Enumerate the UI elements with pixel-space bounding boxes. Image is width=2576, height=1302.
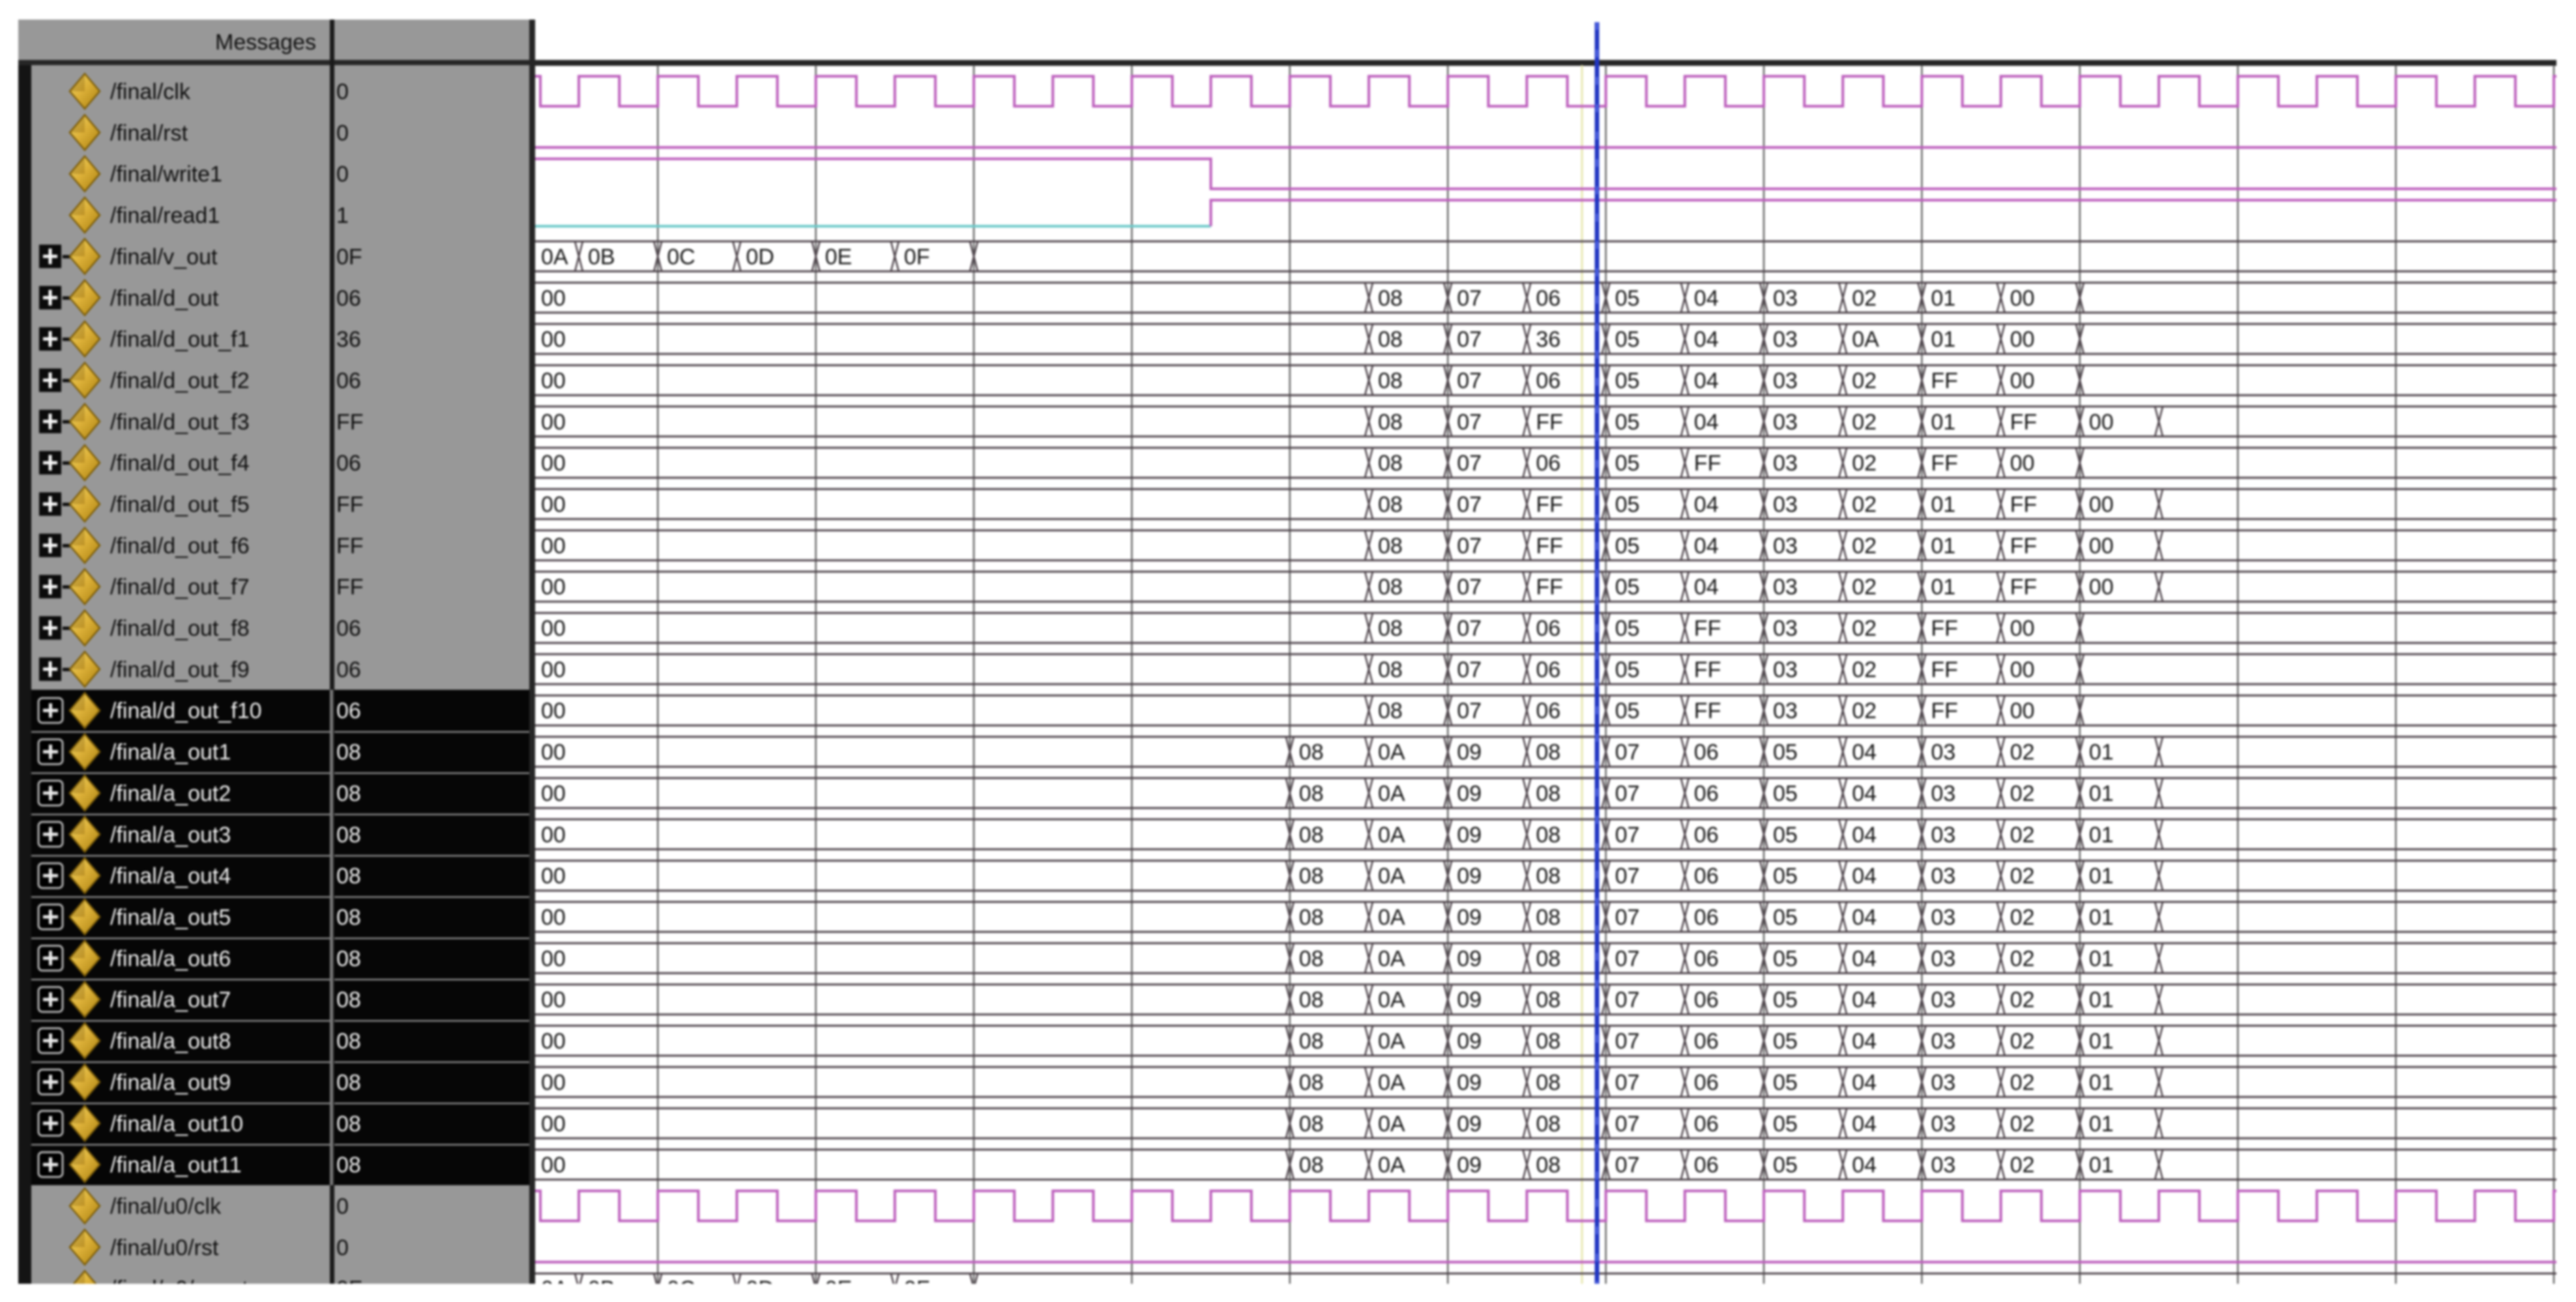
svg-text:09: 09 <box>1457 864 1482 889</box>
svg-text:08: 08 <box>1299 1153 1324 1178</box>
svg-text:03: 03 <box>1773 369 1798 394</box>
svg-text:08: 08 <box>336 946 361 971</box>
svg-text:01: 01 <box>1931 327 1955 352</box>
svg-text:07: 07 <box>1457 616 1482 641</box>
svg-text:04: 04 <box>1852 1029 1877 1054</box>
svg-text:02: 02 <box>2010 781 2035 806</box>
svg-text:06: 06 <box>1694 1029 1719 1054</box>
svg-text:08: 08 <box>1299 1070 1324 1095</box>
svg-text:04: 04 <box>1694 493 1719 517</box>
svg-text:05: 05 <box>1773 1153 1798 1178</box>
svg-text:02: 02 <box>1852 699 1877 723</box>
svg-text:03: 03 <box>1773 286 1798 311</box>
svg-text:07: 07 <box>1457 658 1482 682</box>
svg-text:09: 09 <box>1457 1029 1482 1054</box>
svg-text:02: 02 <box>2010 864 2035 889</box>
svg-text:01: 01 <box>2089 1153 2114 1178</box>
svg-text:02: 02 <box>2010 905 2035 930</box>
svg-text:08: 08 <box>1299 781 1324 806</box>
svg-text:0: 0 <box>336 1194 349 1219</box>
svg-text:00: 00 <box>541 988 566 1013</box>
svg-text:0A: 0A <box>1378 988 1405 1013</box>
svg-text:08: 08 <box>1536 988 1560 1013</box>
svg-text:/final/a_out10: /final/a_out10 <box>110 1112 243 1136</box>
svg-text:1: 1 <box>336 203 349 228</box>
svg-text:04: 04 <box>1852 988 1877 1013</box>
svg-text:/final/u0/rst: /final/u0/rst <box>110 1236 219 1260</box>
svg-text:02: 02 <box>1852 451 1877 476</box>
svg-text:04: 04 <box>1694 534 1719 558</box>
svg-text:07: 07 <box>1615 946 1640 971</box>
svg-text:04: 04 <box>1852 1153 1877 1178</box>
svg-text:08: 08 <box>1378 534 1403 558</box>
svg-text:02: 02 <box>2010 946 2035 971</box>
svg-text:06: 06 <box>336 658 361 682</box>
svg-text:0F: 0F <box>904 244 930 269</box>
svg-text:07: 07 <box>1615 822 1640 847</box>
svg-text:04: 04 <box>1852 822 1877 847</box>
svg-text:03: 03 <box>1931 988 1955 1013</box>
svg-text:03: 03 <box>1773 410 1798 435</box>
svg-text:/final/a_out11: /final/a_out11 <box>110 1153 242 1178</box>
svg-text:03: 03 <box>1931 946 1955 971</box>
svg-text:06: 06 <box>1694 864 1719 889</box>
svg-text:0F: 0F <box>336 244 362 269</box>
svg-text:02: 02 <box>2010 1029 2035 1054</box>
svg-text:05: 05 <box>1773 988 1798 1013</box>
svg-text:/final/write1: /final/write1 <box>110 162 222 187</box>
svg-text:05: 05 <box>1615 327 1640 352</box>
svg-text:FF: FF <box>1931 451 1958 476</box>
svg-text:06: 06 <box>1536 616 1560 641</box>
svg-text:36: 36 <box>1536 327 1560 352</box>
svg-text:0: 0 <box>336 80 349 104</box>
svg-text:07: 07 <box>1615 1112 1640 1136</box>
svg-text:00: 00 <box>541 781 566 806</box>
svg-text:06: 06 <box>1536 451 1560 476</box>
svg-text:00: 00 <box>541 699 566 723</box>
svg-text:FF: FF <box>1694 699 1721 723</box>
svg-text:09: 09 <box>1457 781 1482 806</box>
svg-text:02: 02 <box>2010 740 2035 765</box>
svg-text:03: 03 <box>1773 534 1798 558</box>
svg-text:/final/clk: /final/clk <box>110 80 191 104</box>
svg-text:Messages: Messages <box>215 30 316 55</box>
svg-text:01: 01 <box>1931 534 1955 558</box>
svg-text:05: 05 <box>1615 493 1640 517</box>
svg-text:02: 02 <box>2010 1070 2035 1095</box>
svg-text:06: 06 <box>1694 1070 1719 1095</box>
svg-text:01: 01 <box>1931 493 1955 517</box>
svg-text:02: 02 <box>1852 616 1877 641</box>
svg-text:04: 04 <box>1694 410 1719 435</box>
svg-text:06: 06 <box>1694 1112 1719 1136</box>
svg-text:FF: FF <box>1931 616 1958 641</box>
svg-text:/final/d_out_f10: /final/d_out_f10 <box>110 699 262 723</box>
svg-text:08: 08 <box>1536 946 1560 971</box>
svg-text:08: 08 <box>336 864 361 889</box>
svg-text:08: 08 <box>336 1029 361 1054</box>
svg-text:06: 06 <box>336 286 361 311</box>
svg-text:08: 08 <box>1378 369 1403 394</box>
svg-text:/final/d_out_f4: /final/d_out_f4 <box>110 451 250 476</box>
svg-text:FF: FF <box>1536 493 1563 517</box>
svg-text:07: 07 <box>1457 575 1482 600</box>
svg-text:/final/d_out_f5: /final/d_out_f5 <box>110 493 250 517</box>
svg-text:05: 05 <box>1615 369 1640 394</box>
svg-text:09: 09 <box>1457 988 1482 1013</box>
svg-text:/final/rst: /final/rst <box>110 121 188 145</box>
svg-text:FF: FF <box>336 493 364 517</box>
svg-text:FF: FF <box>1536 410 1563 435</box>
svg-text:0A: 0A <box>1378 822 1405 847</box>
svg-text:06: 06 <box>1536 699 1560 723</box>
svg-text:00: 00 <box>541 1029 566 1054</box>
svg-text:01: 01 <box>2089 905 2114 930</box>
svg-text:03: 03 <box>1931 905 1955 930</box>
svg-text:FF: FF <box>1536 575 1563 600</box>
svg-text:FF: FF <box>1694 451 1721 476</box>
svg-text:03: 03 <box>1773 327 1798 352</box>
svg-text:07: 07 <box>1615 1070 1640 1095</box>
svg-text:03: 03 <box>1931 1153 1955 1178</box>
svg-text:00: 00 <box>541 493 566 517</box>
svg-text:05: 05 <box>1615 451 1640 476</box>
svg-text:08: 08 <box>336 1153 361 1178</box>
svg-text:01: 01 <box>1931 410 1955 435</box>
svg-text:09: 09 <box>1457 1153 1482 1178</box>
svg-text:09: 09 <box>1457 740 1482 765</box>
svg-text:02: 02 <box>1852 369 1877 394</box>
svg-text:05: 05 <box>1615 699 1640 723</box>
svg-text:06: 06 <box>1536 286 1560 311</box>
svg-text:06: 06 <box>1536 658 1560 682</box>
svg-text:0B: 0B <box>588 244 615 269</box>
svg-text:01: 01 <box>1931 575 1955 600</box>
svg-text:06: 06 <box>336 451 361 476</box>
svg-text:04: 04 <box>1852 740 1877 765</box>
svg-text:00: 00 <box>2089 534 2114 558</box>
svg-text:01: 01 <box>2089 781 2114 806</box>
svg-text:08: 08 <box>1378 410 1403 435</box>
svg-text:07: 07 <box>1615 781 1640 806</box>
svg-text:/final/d_out_f2: /final/d_out_f2 <box>110 369 250 394</box>
svg-text:02: 02 <box>2010 1153 2035 1178</box>
svg-text:07: 07 <box>1457 534 1482 558</box>
svg-text:08: 08 <box>336 988 361 1013</box>
svg-text:FF: FF <box>2010 534 2038 558</box>
svg-text:00: 00 <box>541 616 566 641</box>
svg-text:01: 01 <box>2089 1112 2114 1136</box>
svg-text:06: 06 <box>336 616 361 641</box>
svg-text:/final/a_out4: /final/a_out4 <box>110 864 231 889</box>
svg-text:08: 08 <box>336 822 361 847</box>
svg-text:08: 08 <box>336 1070 361 1095</box>
svg-text:/final/d_out_f1: /final/d_out_f1 <box>110 327 250 352</box>
svg-text:00: 00 <box>2010 658 2035 682</box>
svg-text:0A: 0A <box>1852 327 1879 352</box>
svg-text:08: 08 <box>336 781 361 806</box>
svg-text:07: 07 <box>1457 451 1482 476</box>
svg-text:02: 02 <box>2010 988 2035 1013</box>
svg-text:02: 02 <box>1852 493 1877 517</box>
svg-text:0: 0 <box>336 162 349 187</box>
svg-text:04: 04 <box>1852 1070 1877 1095</box>
svg-text:08: 08 <box>1299 1112 1324 1136</box>
svg-text:0A: 0A <box>1378 864 1405 889</box>
svg-text:01: 01 <box>1931 286 1955 311</box>
svg-text:0A: 0A <box>1378 1112 1405 1136</box>
svg-text:06: 06 <box>1694 988 1719 1013</box>
svg-text:08: 08 <box>1378 699 1403 723</box>
svg-text:05: 05 <box>1773 1112 1798 1136</box>
svg-text:08: 08 <box>1378 493 1403 517</box>
svg-text:FF: FF <box>2010 410 2038 435</box>
svg-text:05: 05 <box>1773 781 1798 806</box>
svg-text:08: 08 <box>1536 781 1560 806</box>
svg-text:0A: 0A <box>1378 781 1405 806</box>
svg-text:0C: 0C <box>667 244 695 269</box>
svg-text:05: 05 <box>1615 575 1640 600</box>
svg-text:00: 00 <box>541 1153 566 1178</box>
svg-text:02: 02 <box>1852 534 1877 558</box>
svg-text:00: 00 <box>2010 286 2035 311</box>
svg-text:/final/a_out6: /final/a_out6 <box>110 946 231 971</box>
svg-text:05: 05 <box>1773 864 1798 889</box>
svg-text:FF: FF <box>2010 493 2038 517</box>
svg-text:00: 00 <box>2010 699 2035 723</box>
svg-text:00: 00 <box>541 1070 566 1095</box>
svg-text:06: 06 <box>336 699 361 723</box>
svg-text:06: 06 <box>1694 905 1719 930</box>
svg-text:00: 00 <box>541 534 566 558</box>
svg-text:04: 04 <box>1694 327 1719 352</box>
svg-text:07: 07 <box>1615 740 1640 765</box>
svg-text:06: 06 <box>1694 781 1719 806</box>
svg-text:01: 01 <box>2089 1070 2114 1095</box>
svg-text:05: 05 <box>1773 740 1798 765</box>
svg-text:05: 05 <box>1615 616 1640 641</box>
svg-text:00: 00 <box>2089 575 2114 600</box>
svg-text:03: 03 <box>1773 493 1798 517</box>
svg-text:00: 00 <box>2010 327 2035 352</box>
svg-text:00: 00 <box>541 740 566 765</box>
svg-text:08: 08 <box>1378 658 1403 682</box>
svg-text:08: 08 <box>1378 451 1403 476</box>
svg-text:08: 08 <box>1536 1029 1560 1054</box>
svg-text:01: 01 <box>2089 740 2114 765</box>
svg-text:00: 00 <box>541 327 566 352</box>
svg-text:08: 08 <box>1299 822 1324 847</box>
svg-text:00: 00 <box>541 410 566 435</box>
svg-text:04: 04 <box>1852 905 1877 930</box>
svg-text:03: 03 <box>1931 822 1955 847</box>
svg-text:02: 02 <box>1852 575 1877 600</box>
svg-text:08: 08 <box>1378 616 1403 641</box>
svg-text:FF: FF <box>1931 658 1958 682</box>
svg-text:05: 05 <box>1615 286 1640 311</box>
svg-text:0A: 0A <box>1378 905 1405 930</box>
svg-text:06: 06 <box>336 369 361 394</box>
svg-text:08: 08 <box>1378 575 1403 600</box>
svg-text:07: 07 <box>1615 864 1640 889</box>
svg-text:08: 08 <box>1536 1153 1560 1178</box>
svg-text:36: 36 <box>336 327 361 352</box>
svg-text:05: 05 <box>1773 822 1798 847</box>
svg-text:08: 08 <box>1299 864 1324 889</box>
svg-text:/final/v_out: /final/v_out <box>110 244 218 269</box>
svg-text:03: 03 <box>1773 699 1798 723</box>
svg-text:03: 03 <box>1773 658 1798 682</box>
svg-text:05: 05 <box>1773 1029 1798 1054</box>
svg-text:05: 05 <box>1615 410 1640 435</box>
svg-text:01: 01 <box>2089 988 2114 1013</box>
svg-text:/final/d_out_f6: /final/d_out_f6 <box>110 534 250 558</box>
svg-text:0A: 0A <box>1378 740 1405 765</box>
svg-text:03: 03 <box>1931 864 1955 889</box>
svg-text:08: 08 <box>1299 988 1324 1013</box>
svg-text:05: 05 <box>1615 534 1640 558</box>
svg-text:0A: 0A <box>541 244 568 269</box>
svg-text:08: 08 <box>1378 327 1403 352</box>
svg-text:04: 04 <box>1694 369 1719 394</box>
svg-text:04: 04 <box>1852 781 1877 806</box>
svg-text:/final/a_out1: /final/a_out1 <box>110 740 231 765</box>
svg-text:07: 07 <box>1615 988 1640 1013</box>
svg-text:09: 09 <box>1457 946 1482 971</box>
svg-text:03: 03 <box>1931 781 1955 806</box>
svg-text:/final/u0/clk: /final/u0/clk <box>110 1194 222 1219</box>
svg-text:01: 01 <box>2089 946 2114 971</box>
svg-text:/final/d_out_f9: /final/d_out_f9 <box>110 658 250 682</box>
svg-text:0E: 0E <box>825 244 853 269</box>
svg-text:02: 02 <box>2010 822 2035 847</box>
svg-text:FF: FF <box>336 534 364 558</box>
svg-text:08: 08 <box>336 905 361 930</box>
svg-text:00: 00 <box>541 286 566 311</box>
svg-text:06: 06 <box>1536 369 1560 394</box>
svg-text:08: 08 <box>1299 740 1324 765</box>
svg-text:03: 03 <box>1931 740 1955 765</box>
svg-text:FF: FF <box>1931 369 1958 394</box>
svg-text:00: 00 <box>2010 369 2035 394</box>
svg-text:FF: FF <box>1536 534 1563 558</box>
svg-text:07: 07 <box>1615 1153 1640 1178</box>
svg-text:/final/a_out8: /final/a_out8 <box>110 1029 231 1054</box>
svg-text:08: 08 <box>1536 1112 1560 1136</box>
svg-text:07: 07 <box>1457 369 1482 394</box>
svg-text:FF: FF <box>2010 575 2038 600</box>
svg-text:FF: FF <box>1931 699 1958 723</box>
svg-text:09: 09 <box>1457 822 1482 847</box>
svg-text:08: 08 <box>1536 864 1560 889</box>
svg-text:04: 04 <box>1852 946 1877 971</box>
svg-text:05: 05 <box>1773 905 1798 930</box>
svg-text:00: 00 <box>541 658 566 682</box>
svg-text:07: 07 <box>1457 286 1482 311</box>
svg-text:01: 01 <box>2089 864 2114 889</box>
svg-text:08: 08 <box>1536 905 1560 930</box>
svg-text:02: 02 <box>1852 286 1877 311</box>
svg-text:00: 00 <box>2010 616 2035 641</box>
svg-text:00: 00 <box>2089 493 2114 517</box>
svg-text:09: 09 <box>1457 905 1482 930</box>
svg-text:03: 03 <box>1931 1029 1955 1054</box>
svg-text:/final/d_out_f7: /final/d_out_f7 <box>110 575 250 600</box>
svg-text:07: 07 <box>1615 905 1640 930</box>
svg-text:00: 00 <box>541 822 566 847</box>
svg-text:0D: 0D <box>746 244 774 269</box>
svg-text:02: 02 <box>2010 1112 2035 1136</box>
svg-text:00: 00 <box>541 946 566 971</box>
svg-text:05: 05 <box>1615 658 1640 682</box>
svg-text:08: 08 <box>1536 740 1560 765</box>
svg-text:0A: 0A <box>1378 1153 1405 1178</box>
svg-text:09: 09 <box>1457 1112 1482 1136</box>
svg-text:03: 03 <box>1931 1112 1955 1136</box>
svg-text:08: 08 <box>1378 286 1403 311</box>
svg-text:07: 07 <box>1457 327 1482 352</box>
svg-text:0A: 0A <box>1378 1029 1405 1054</box>
svg-text:07: 07 <box>1615 1029 1640 1054</box>
svg-text:0: 0 <box>336 121 349 145</box>
svg-text:FF: FF <box>1694 658 1721 682</box>
svg-text:/final/read1: /final/read1 <box>110 203 220 228</box>
svg-text:07: 07 <box>1457 493 1482 517</box>
svg-text:01: 01 <box>2089 1029 2114 1054</box>
svg-text:00: 00 <box>541 1112 566 1136</box>
svg-text:03: 03 <box>1773 451 1798 476</box>
svg-text:06: 06 <box>1694 822 1719 847</box>
svg-text:04: 04 <box>1852 1112 1877 1136</box>
svg-text:08: 08 <box>1536 822 1560 847</box>
svg-text:01: 01 <box>2089 822 2114 847</box>
svg-text:0: 0 <box>336 1236 349 1260</box>
svg-text:/final/a_out2: /final/a_out2 <box>110 781 231 806</box>
svg-text:00: 00 <box>2010 451 2035 476</box>
svg-text:/final/a_out5: /final/a_out5 <box>110 905 231 930</box>
svg-text:06: 06 <box>1694 740 1719 765</box>
svg-text:00: 00 <box>541 905 566 930</box>
svg-text:04: 04 <box>1694 575 1719 600</box>
svg-text:05: 05 <box>1773 1070 1798 1095</box>
svg-text:06: 06 <box>1694 1153 1719 1178</box>
svg-text:FF: FF <box>1694 616 1721 641</box>
svg-text:03: 03 <box>1773 575 1798 600</box>
svg-text:00: 00 <box>541 864 566 889</box>
svg-text:02: 02 <box>1852 410 1877 435</box>
svg-text:08: 08 <box>1299 905 1324 930</box>
svg-text:/final/a_out7: /final/a_out7 <box>110 988 231 1013</box>
svg-text:07: 07 <box>1457 410 1482 435</box>
svg-text:07: 07 <box>1457 699 1482 723</box>
svg-text:04: 04 <box>1852 864 1877 889</box>
svg-text:05: 05 <box>1773 946 1798 971</box>
svg-text:00: 00 <box>541 575 566 600</box>
svg-text:08: 08 <box>336 1112 361 1136</box>
svg-text:06: 06 <box>1694 946 1719 971</box>
svg-text:00: 00 <box>541 451 566 476</box>
svg-text:08: 08 <box>336 740 361 765</box>
svg-text:08: 08 <box>1536 1070 1560 1095</box>
svg-text:08: 08 <box>1299 1029 1324 1054</box>
svg-text:/final/a_out9: /final/a_out9 <box>110 1070 231 1095</box>
svg-text:0A: 0A <box>1378 1070 1405 1095</box>
svg-text:/final/a_out3: /final/a_out3 <box>110 822 231 847</box>
svg-text:08: 08 <box>1299 946 1324 971</box>
svg-text:FF: FF <box>336 575 364 600</box>
svg-text:0A: 0A <box>1378 946 1405 971</box>
